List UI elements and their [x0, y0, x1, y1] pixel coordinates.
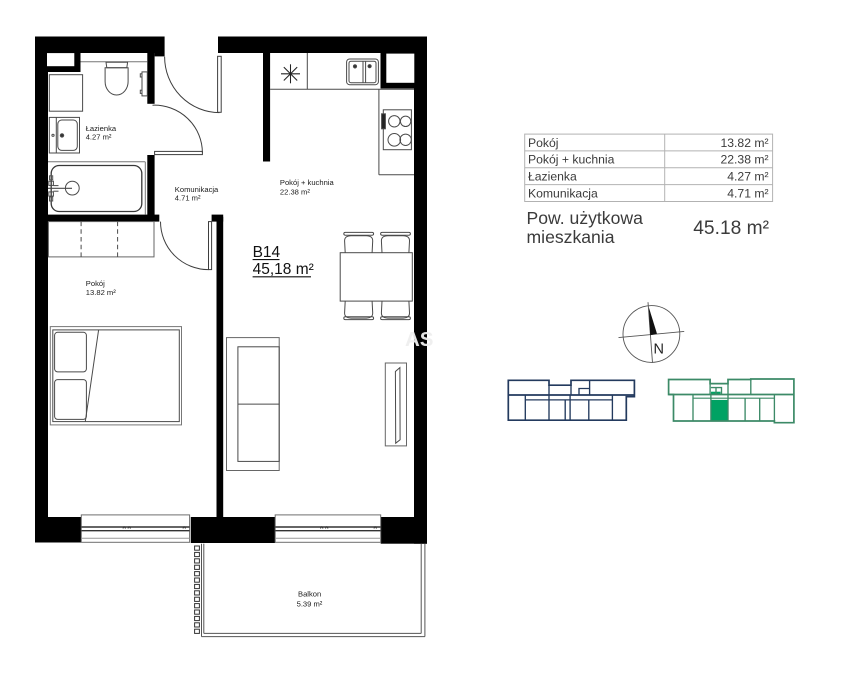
- svg-text:N: N: [654, 341, 664, 357]
- svg-text:Łazienka: Łazienka: [528, 170, 577, 184]
- svg-text:22.38 m²: 22.38 m²: [720, 153, 768, 167]
- svg-text:5.39 m²: 5.39 m²: [297, 599, 323, 608]
- svg-text:13.82 m²: 13.82 m²: [86, 288, 116, 297]
- svg-text:22.38 m²: 22.38 m²: [280, 187, 310, 196]
- svg-text:B14: B14: [253, 244, 281, 261]
- svg-text:4.71 m²: 4.71 m²: [175, 194, 201, 203]
- svg-text:Pokój: Pokój: [528, 136, 559, 150]
- svg-text:45.18 m²: 45.18 m²: [693, 218, 769, 239]
- svg-text:AS: AS: [405, 328, 433, 351]
- svg-text:4.27 m²: 4.27 m²: [86, 132, 112, 141]
- svg-text:4.71 m²: 4.71 m²: [727, 186, 768, 200]
- svg-text:Pokój + kuchnia: Pokój + kuchnia: [528, 153, 615, 167]
- svg-text:Pow. użytkowa: Pow. użytkowa: [527, 208, 644, 228]
- svg-text:45,18 m²: 45,18 m²: [253, 261, 314, 278]
- svg-text:13.82 m²: 13.82 m²: [720, 136, 768, 150]
- svg-text:Balkon: Balkon: [298, 590, 321, 599]
- svg-text:Komunikacja: Komunikacja: [175, 185, 219, 194]
- svg-text:Komunikacja: Komunikacja: [528, 186, 598, 200]
- svg-text:Pokój: Pokój: [86, 279, 105, 288]
- svg-text:4.27 m²: 4.27 m²: [727, 170, 768, 184]
- svg-text:mieszkania: mieszkania: [527, 227, 615, 247]
- svg-text:Pokój + kuchnia: Pokój + kuchnia: [280, 178, 335, 187]
